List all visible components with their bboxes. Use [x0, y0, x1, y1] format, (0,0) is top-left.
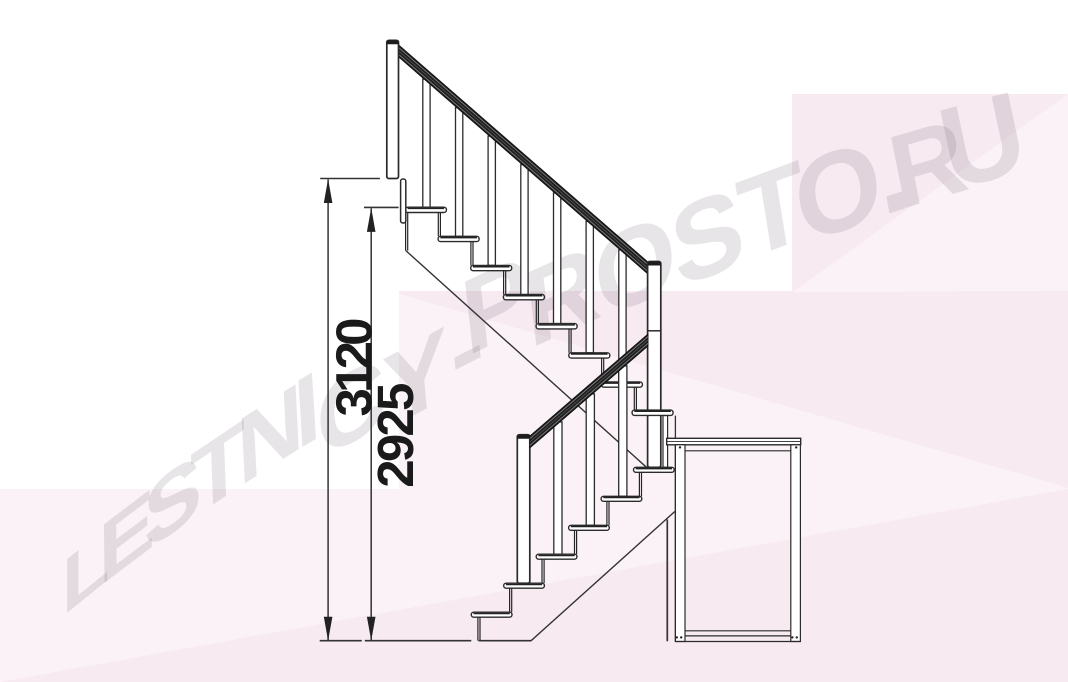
svg-text:2925: 2925: [367, 384, 424, 488]
